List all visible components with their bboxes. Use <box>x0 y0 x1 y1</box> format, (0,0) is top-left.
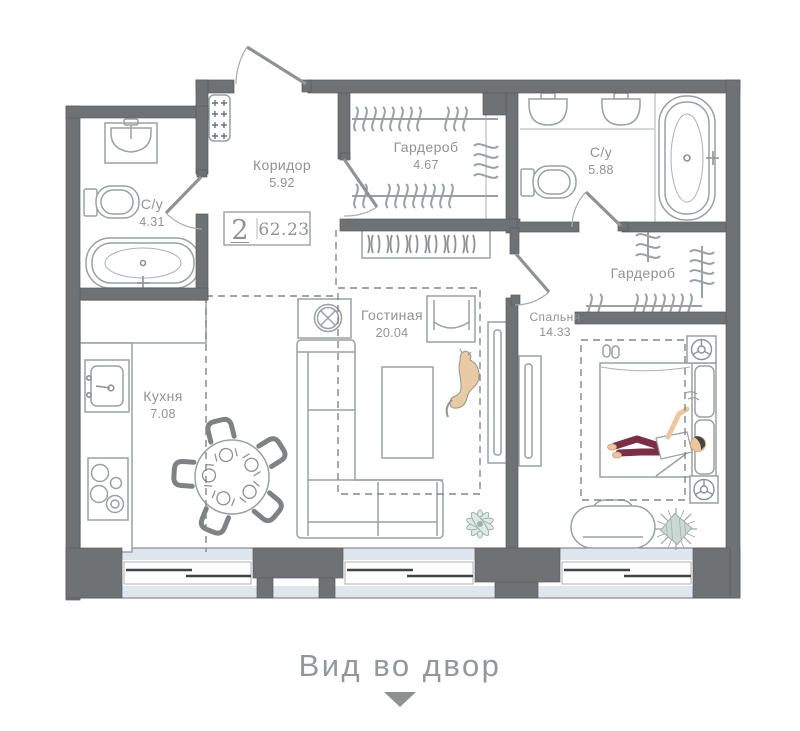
kitchen-fixtures <box>80 300 288 552</box>
floor-plan-page: Коридор 5.92 Гардероб 4.67 С/у 5.88 С/у … <box>0 0 800 731</box>
nightstand-bottom <box>690 476 718 503</box>
main-bathroom <box>520 93 719 222</box>
bed <box>600 363 716 477</box>
washing-machine-icon <box>298 299 351 338</box>
hanger-rail-top <box>352 107 498 131</box>
badge-total-area: 62.23 <box>258 220 309 240</box>
room-label-bedroom: Спальня <box>529 310 580 324</box>
sink-icon <box>529 93 567 125</box>
nightstand-top <box>687 336 716 363</box>
dining-table <box>173 418 287 535</box>
room-label-guest-bathroom: С/у <box>141 196 163 212</box>
sink-icon <box>105 119 157 163</box>
toilet-icon <box>521 166 576 198</box>
apartment-badge: 2 62.23 <box>224 212 310 246</box>
bathtub-icon <box>86 238 200 289</box>
bench <box>571 500 655 548</box>
slippers-icon <box>603 345 619 358</box>
floor-plan: Коридор 5.92 Гардероб 4.67 С/у 5.88 С/у … <box>0 0 800 620</box>
room-label-main-bathroom: С/у <box>590 144 612 160</box>
hanger-rail-left <box>636 230 660 262</box>
toilet-icon <box>84 186 139 218</box>
kitchen-counter-top <box>80 300 206 343</box>
badge-rooms-count: 2 <box>231 215 248 246</box>
room-label-living: Гостиная <box>361 307 423 323</box>
entrance-door <box>236 47 306 84</box>
room-label-hall-wardrobe: Гардероб <box>394 139 459 155</box>
room-label-kitchen: Кухня <box>143 388 182 404</box>
sink-icon <box>602 93 640 125</box>
room-area-kitchen: 7.08 <box>150 407 176 421</box>
view-caption: Вид во двор <box>0 648 800 707</box>
room-area-corridor: 5.92 <box>269 176 295 190</box>
room-area-main-bathroom: 5.88 <box>588 163 614 177</box>
electrical-panel-icon <box>209 95 230 141</box>
view-caption-text: Вид во двор <box>0 648 800 684</box>
bathtub-icon <box>659 96 719 220</box>
down-arrow-icon <box>384 692 416 707</box>
cat <box>447 349 479 417</box>
room-area-bedroom: 14.33 <box>539 325 571 339</box>
room-area-guest-bathroom: 4.31 <box>139 215 165 229</box>
hall-wardrobe-door <box>344 159 377 216</box>
room-label-corridor: Коридор <box>253 157 311 173</box>
hanger-rail-right <box>690 246 714 298</box>
shoe-rack <box>362 230 490 258</box>
plant-icon <box>465 510 494 538</box>
room-label-bedroom-wardrobe: Гардероб <box>611 265 676 281</box>
room-area-living: 20.04 <box>376 326 409 340</box>
coffee-table <box>382 367 433 458</box>
armchair <box>427 296 475 342</box>
window-band <box>66 548 740 598</box>
plant-icon <box>655 508 697 550</box>
bedroom-fixtures <box>519 336 718 550</box>
tv-bedroom <box>519 356 541 466</box>
room-area-hall-wardrobe: 4.67 <box>413 158 439 172</box>
